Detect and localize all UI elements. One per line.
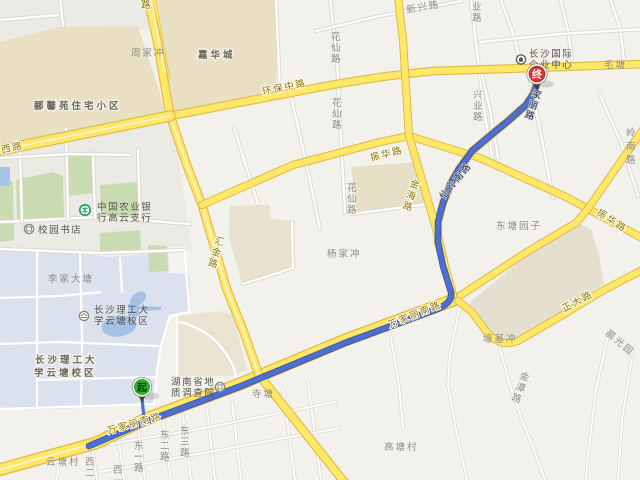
svg-text:花仙路: 花仙路 xyxy=(347,182,358,216)
svg-text:长沙理工大: 长沙理工大 xyxy=(94,304,150,316)
svg-text:学云塘校区: 学云塘校区 xyxy=(94,315,150,327)
svg-text:李家大塘: 李家大塘 xyxy=(48,273,94,285)
svg-text:杨家冲: 杨家冲 xyxy=(327,248,362,260)
svg-text:壕基冲: 壕基冲 xyxy=(483,333,518,345)
svg-text:终: 终 xyxy=(532,68,543,81)
svg-text:西二: 西二 xyxy=(85,457,96,479)
svg-text:高塘村: 高塘村 xyxy=(384,441,419,453)
svg-text:郦馨苑住宅小区: 郦馨苑住宅小区 xyxy=(34,100,122,112)
svg-text:西一: 西一 xyxy=(113,465,124,480)
svg-text:东三路: 东三路 xyxy=(180,425,191,459)
svg-text:路: 路 xyxy=(141,0,152,11)
svg-text:寺塘: 寺塘 xyxy=(252,388,275,400)
svg-text:花仙路: 花仙路 xyxy=(332,97,343,131)
svg-text:长沙国际: 长沙国际 xyxy=(529,48,573,60)
svg-text:东一路: 东一路 xyxy=(134,440,145,474)
svg-text:业路: 业路 xyxy=(472,2,483,24)
svg-text:东塘园子: 东塘园子 xyxy=(496,220,542,232)
svg-text:起: 起 xyxy=(136,381,148,394)
svg-text:行高云支行: 行高云支行 xyxy=(97,212,153,224)
svg-text:嘉华城: 嘉华城 xyxy=(197,49,236,61)
svg-text:长沙理工大: 长沙理工大 xyxy=(35,354,98,366)
svg-text:湖南省地: 湖南省地 xyxy=(171,376,215,388)
svg-text:质调查院: 质调查院 xyxy=(171,387,215,399)
svg-text:东二路: 东二路 xyxy=(160,429,171,463)
svg-text:校园书店: 校园书店 xyxy=(38,224,82,236)
svg-text:中国农业银: 中国农业银 xyxy=(97,201,153,213)
svg-text:学云塘校区: 学云塘校区 xyxy=(34,367,97,379)
svg-text:兴业路: 兴业路 xyxy=(473,90,484,123)
svg-text:岭南路: 岭南路 xyxy=(626,127,637,166)
svg-text:毛塘: 毛塘 xyxy=(604,59,627,71)
svg-text:云塘村: 云塘村 xyxy=(46,456,81,468)
svg-text:周家冲: 周家冲 xyxy=(131,47,166,59)
svg-text:花仙路: 花仙路 xyxy=(331,31,342,65)
